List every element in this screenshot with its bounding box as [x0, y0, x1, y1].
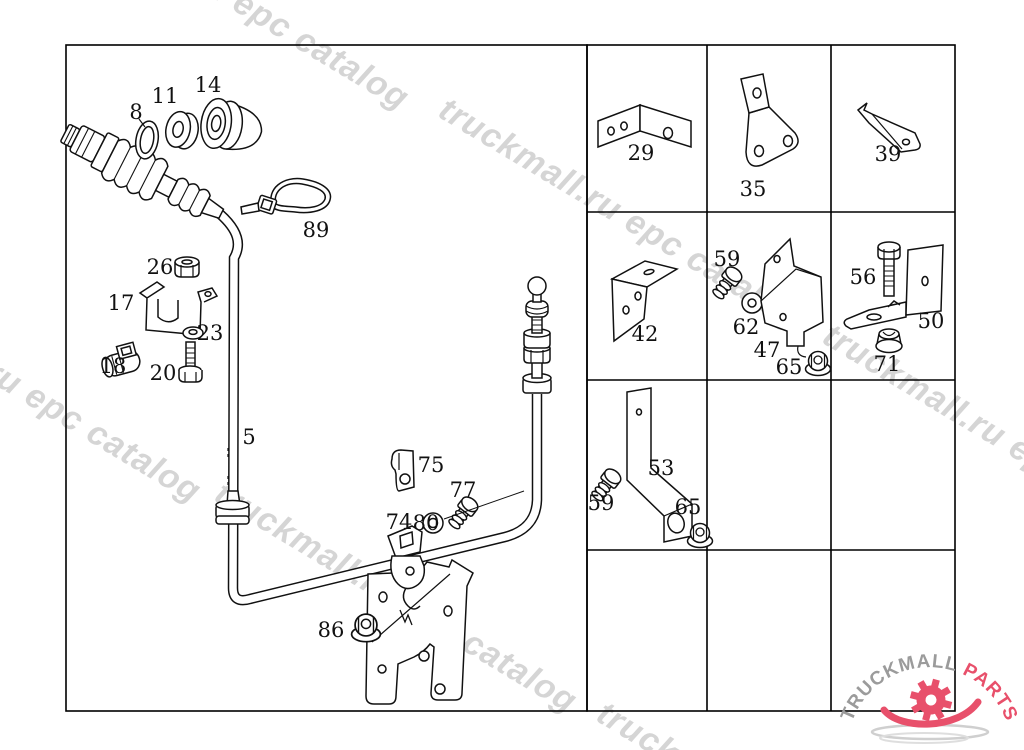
leader-axis-80: [444, 491, 524, 519]
part-bracket-47: [761, 239, 823, 357]
part-washer-11: [163, 109, 202, 151]
part-angle-42: [612, 261, 677, 341]
part-bolt-77: [445, 494, 480, 532]
part-bolt-59a: [709, 264, 744, 302]
part-bolt-56: [878, 242, 900, 296]
part-grommet-80: [423, 513, 443, 533]
part-cable-sleeve: [216, 491, 249, 524]
brand-logo: TRUCKMALL PARTS: [838, 626, 1024, 750]
part-bolt-20: [179, 342, 202, 382]
part-bracket-35: [741, 74, 798, 166]
part-washer-23: [183, 327, 203, 339]
part-cable-5: [220, 214, 537, 600]
part-clip-18: [98, 342, 142, 379]
part-cable-tie-89: [241, 179, 330, 215]
page: truckmall.ru epc catalog truckmall.ru ep…: [0, 0, 1024, 750]
part-strip-39: [858, 103, 920, 152]
part-nut-26: [175, 257, 199, 277]
part-angle-29: [598, 105, 691, 147]
part-capnut-71: [876, 329, 902, 353]
part-strip-53: [627, 388, 692, 542]
part-washer-62: [742, 293, 762, 313]
part-cable-end: [523, 277, 551, 393]
part-nut-65a: [806, 352, 831, 376]
part-clamp-17: [140, 282, 217, 335]
part-grommet-14: [198, 97, 265, 155]
part-clip-75: [391, 450, 414, 491]
part-bolt-59b: [588, 466, 623, 504]
